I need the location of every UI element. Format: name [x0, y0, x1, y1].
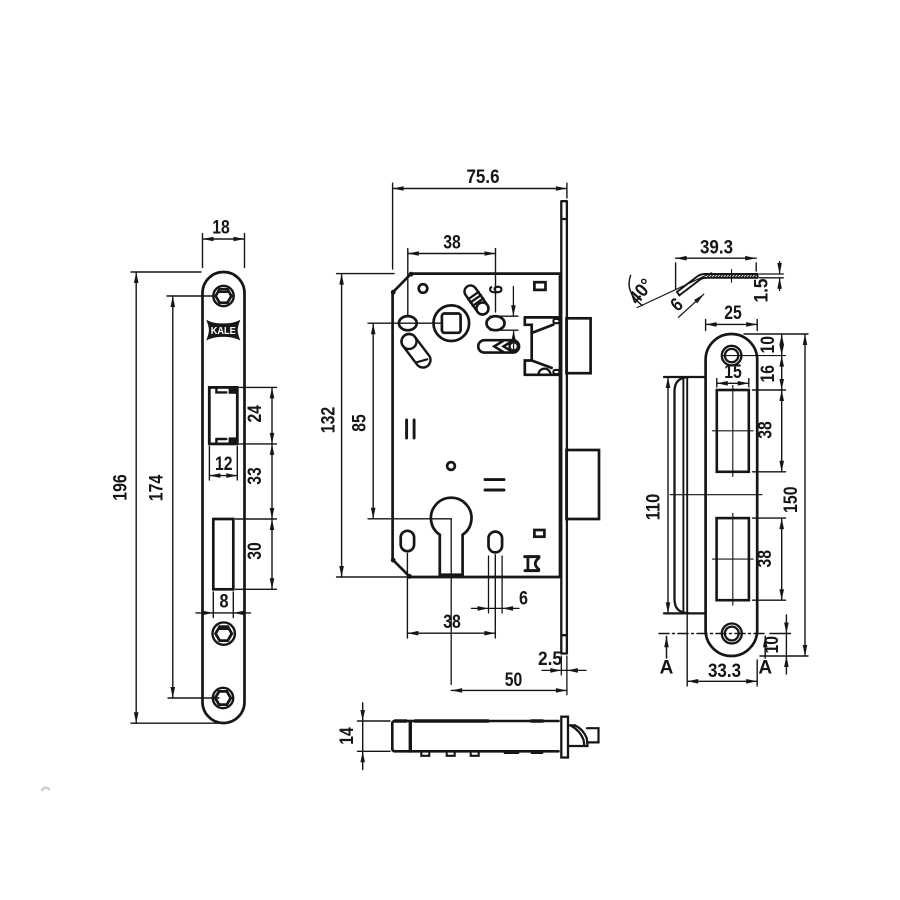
svg-text:38: 38 [443, 612, 461, 633]
svg-text:16: 16 [758, 365, 779, 383]
svg-text:110: 110 [644, 494, 665, 521]
svg-text:150: 150 [781, 486, 802, 513]
svg-text:14: 14 [337, 727, 358, 745]
svg-text:10: 10 [762, 636, 783, 654]
svg-text:38: 38 [755, 550, 776, 568]
svg-text:30: 30 [245, 542, 266, 560]
svg-text:39.3: 39.3 [700, 238, 733, 259]
svg-text:15: 15 [724, 362, 742, 383]
svg-text:174: 174 [147, 474, 168, 501]
svg-text:A: A [660, 658, 674, 679]
svg-text:12: 12 [215, 454, 233, 475]
svg-text:25: 25 [724, 303, 742, 324]
svg-text:38: 38 [755, 421, 776, 439]
svg-text:50: 50 [505, 670, 523, 691]
svg-text:1.5: 1.5 [752, 278, 773, 302]
svg-text:33.3: 33.3 [708, 661, 741, 682]
svg-text:10: 10 [758, 336, 779, 354]
svg-text:A: A [758, 658, 772, 679]
svg-text:18: 18 [212, 218, 230, 239]
svg-text:2.5: 2.5 [538, 649, 562, 670]
svg-text:6: 6 [487, 285, 508, 294]
svg-text:KALE: KALE [211, 325, 236, 337]
svg-text:196: 196 [111, 474, 132, 501]
svg-text:38: 38 [443, 232, 461, 253]
svg-text:6: 6 [519, 589, 528, 610]
svg-text:132: 132 [319, 407, 340, 434]
svg-text:75.6: 75.6 [467, 167, 500, 188]
svg-text:85: 85 [350, 414, 371, 432]
svg-text:24: 24 [245, 405, 266, 423]
svg-text:8: 8 [220, 591, 229, 612]
svg-text:33: 33 [245, 467, 266, 485]
